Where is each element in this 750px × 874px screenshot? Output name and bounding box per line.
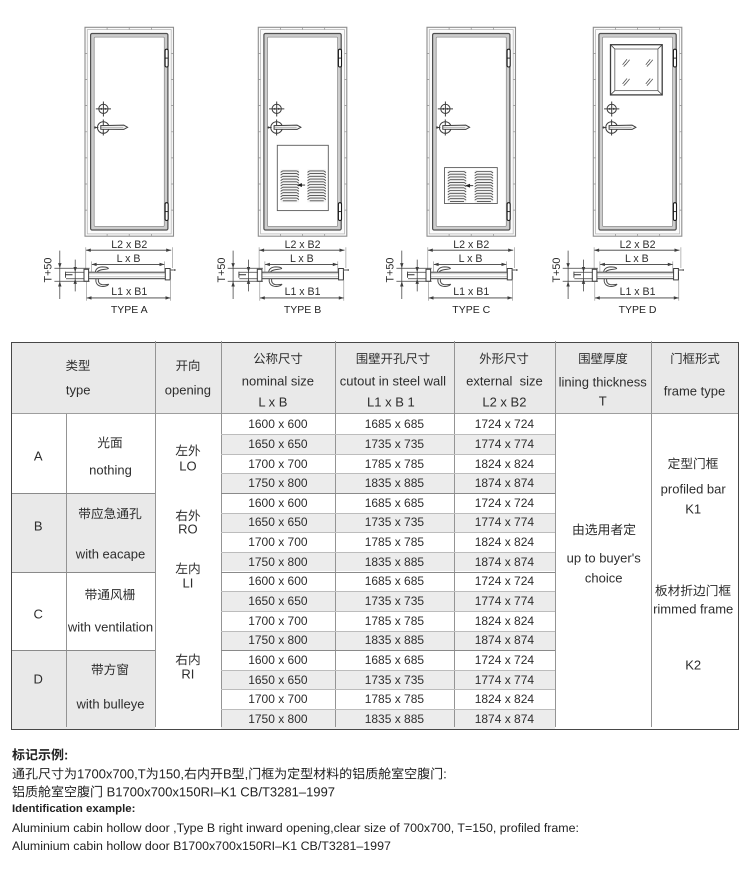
svg-text:L x B: L x B bbox=[625, 253, 649, 265]
svg-text:L2 x B2: L2 x B2 bbox=[285, 239, 321, 251]
svg-text:L x B: L x B bbox=[290, 253, 314, 265]
svg-text:TYPE A: TYPE A bbox=[111, 304, 148, 316]
svg-text:L2 x B2: L2 x B2 bbox=[453, 239, 489, 251]
svg-text:L1 x B1: L1 x B1 bbox=[620, 286, 656, 298]
svg-text:L2 x B2: L2 x B2 bbox=[620, 239, 656, 251]
svg-text:T: T bbox=[237, 271, 249, 278]
svg-text:T+50: T+50 bbox=[216, 258, 228, 283]
svg-text:L x B: L x B bbox=[459, 253, 483, 265]
svg-text:L1 x B1: L1 x B1 bbox=[453, 286, 489, 298]
svg-text:TYPE D: TYPE D bbox=[619, 304, 657, 316]
svg-text:T: T bbox=[406, 271, 418, 278]
svg-text:T: T bbox=[572, 271, 584, 278]
svg-text:TYPE B: TYPE B bbox=[284, 304, 321, 316]
svg-text:L1 x B1: L1 x B1 bbox=[111, 286, 147, 298]
svg-text:T+50: T+50 bbox=[551, 258, 563, 283]
svg-text:L x B: L x B bbox=[117, 253, 141, 265]
svg-text:L2 x B2: L2 x B2 bbox=[111, 239, 147, 251]
svg-text:L1 x B1: L1 x B1 bbox=[285, 286, 321, 298]
svg-text:T+50: T+50 bbox=[385, 258, 397, 283]
svg-text:T: T bbox=[64, 271, 76, 278]
svg-text:T+50: T+50 bbox=[43, 258, 55, 283]
svg-text:TYPE C: TYPE C bbox=[452, 304, 490, 316]
